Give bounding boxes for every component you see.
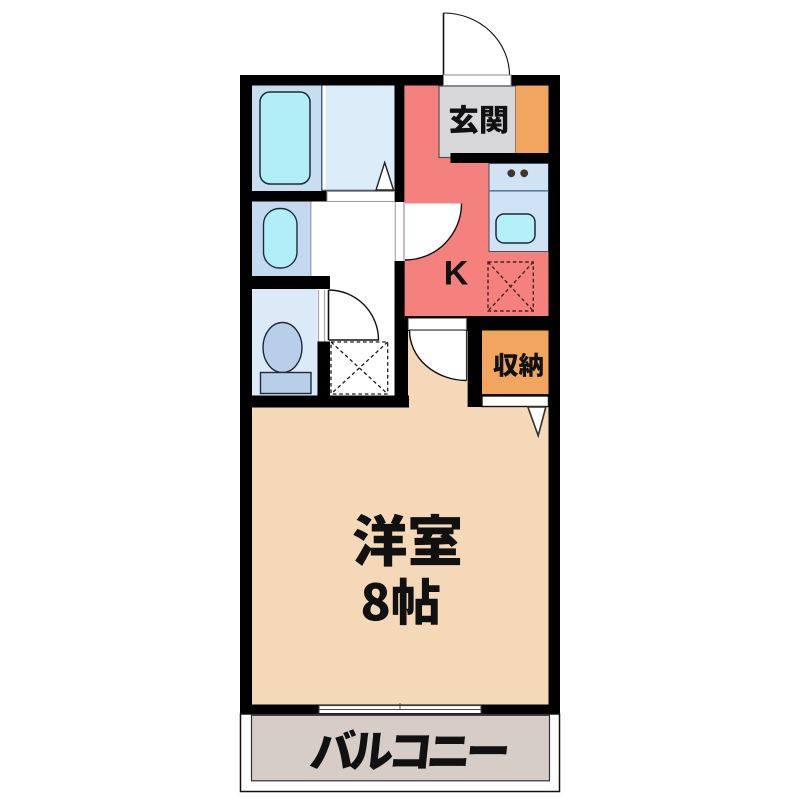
- svg-text:K: K: [444, 255, 469, 293]
